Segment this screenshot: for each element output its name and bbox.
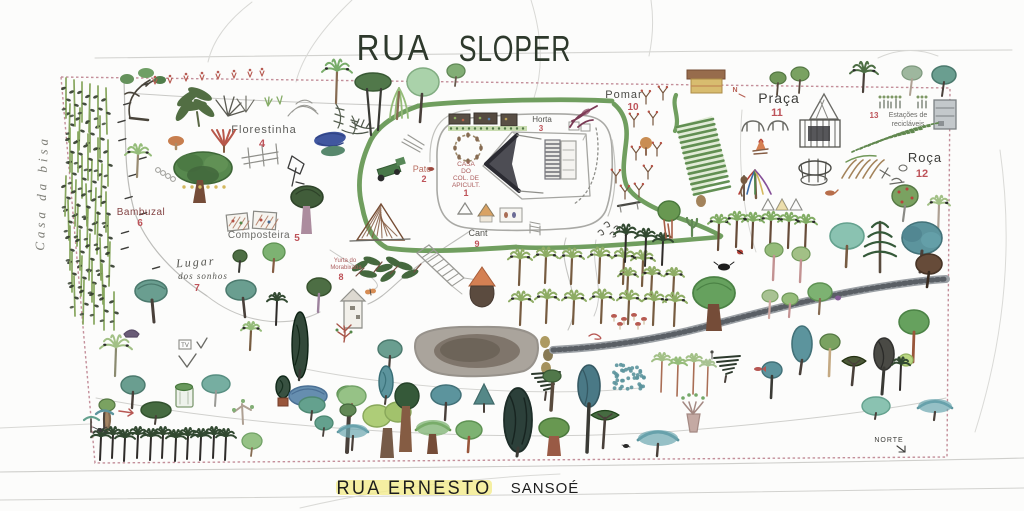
svg-text:SLOPER: SLOPER	[459, 28, 571, 69]
svg-text:10: 10	[627, 102, 639, 113]
svg-text:13: 13	[870, 111, 879, 120]
svg-text:Praça: Praça	[758, 90, 800, 106]
svg-text:Composteira: Composteira	[228, 230, 290, 241]
svg-text:5: 5	[294, 233, 300, 244]
svg-text:2: 2	[421, 174, 426, 184]
svg-text:DO: DO	[461, 168, 471, 175]
svg-text:TV: TV	[181, 343, 189, 349]
svg-text:Estações de: Estações de	[889, 112, 928, 119]
svg-text:Roça: Roça	[908, 150, 942, 165]
svg-text:SANSOÉ: SANSOÉ	[511, 480, 580, 497]
svg-text:Bambuzal: Bambuzal	[117, 207, 165, 218]
svg-text:11: 11	[771, 107, 783, 119]
svg-text:6: 6	[137, 218, 143, 229]
svg-text:Cant: Cant	[468, 228, 488, 238]
svg-text:COL. DE: COL. DE	[453, 175, 480, 182]
svg-text:8: 8	[338, 272, 343, 282]
svg-text:NORTE: NORTE	[874, 437, 903, 444]
svg-text:CASA: CASA	[457, 161, 475, 168]
svg-text:1: 1	[463, 188, 468, 198]
svg-text:Pomar: Pomar	[605, 89, 642, 101]
svg-text:RUA ERNESTO: RUA ERNESTO	[336, 477, 491, 499]
svg-text:Yurta do: Yurta do	[334, 258, 357, 264]
svg-text:Horta: Horta	[532, 115, 552, 124]
svg-text:Florestinha: Florestinha	[231, 124, 296, 136]
svg-text:3: 3	[539, 124, 544, 133]
svg-text:N: N	[732, 87, 737, 94]
svg-text:7: 7	[194, 283, 200, 294]
svg-text:dos sonhos: dos sonhos	[178, 271, 228, 281]
svg-text:Lugar: Lugar	[175, 254, 216, 271]
svg-text:RUA: RUA	[357, 28, 432, 68]
svg-text:12: 12	[916, 168, 928, 180]
svg-text:Morabixaba: Morabixaba	[330, 265, 362, 271]
